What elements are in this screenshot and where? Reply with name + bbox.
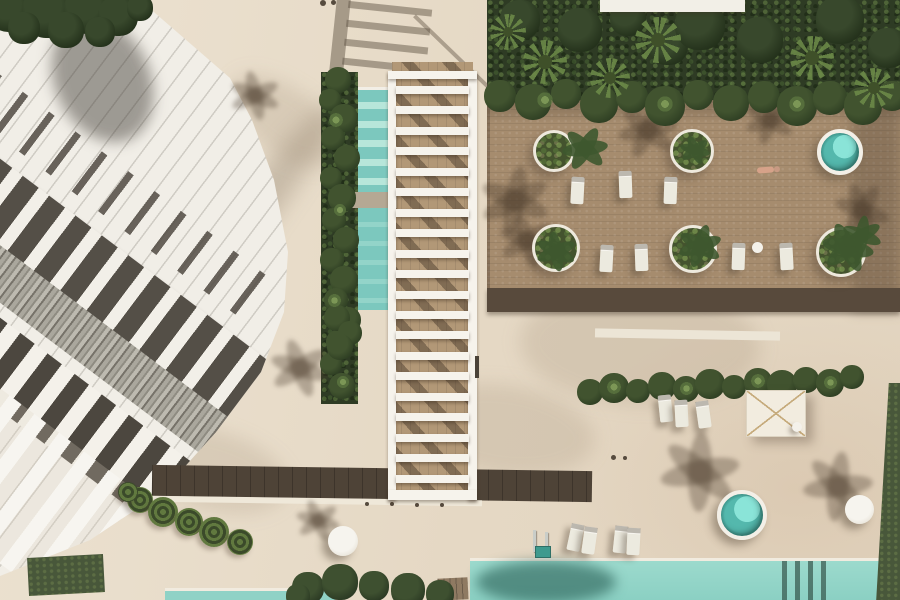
aerial-resort-scene — [0, 0, 900, 600]
leaf-accent — [536, 91, 554, 109]
hedge-blob — [334, 145, 360, 171]
lounger — [618, 170, 632, 197]
leaf-accent — [336, 375, 350, 389]
leaf-accent — [328, 112, 344, 128]
pergola-rung — [396, 475, 469, 483]
bush — [359, 571, 389, 600]
tree-blob — [8, 12, 40, 44]
pergola-rung — [396, 106, 469, 114]
jacuzzi — [717, 490, 767, 540]
daybed — [845, 495, 874, 524]
grass-patch — [27, 554, 105, 596]
bed-plant — [199, 517, 229, 547]
jacuzzi — [817, 129, 863, 175]
lap-pool — [358, 87, 391, 310]
palm-shadow-in-pool — [476, 561, 616, 600]
lounger — [570, 176, 584, 204]
table — [752, 242, 763, 253]
pergola-rung — [396, 291, 469, 299]
pergola-rung — [396, 352, 469, 360]
pergola-rung — [396, 454, 469, 462]
dot — [331, 0, 336, 5]
pool-step-stripe — [782, 561, 787, 600]
pergola-rung — [396, 229, 469, 237]
pool-step-stripe — [795, 561, 800, 600]
crown — [854, 68, 894, 108]
lap-pool-lower-section — [358, 208, 389, 310]
hedge-blob — [748, 81, 780, 113]
leaf-accent — [606, 379, 622, 395]
hedge-blob — [713, 85, 749, 121]
leaf-accent — [823, 375, 838, 390]
tree-blob — [48, 12, 84, 48]
pergola-fixture — [475, 356, 479, 378]
hedge-blob — [683, 80, 713, 110]
pergola-rung — [396, 147, 469, 155]
pergola-rung — [396, 209, 469, 217]
dot — [623, 456, 627, 460]
leaf-accent — [333, 203, 347, 217]
dot — [390, 502, 394, 506]
leaf-accent — [656, 95, 674, 113]
fronds — [679, 141, 711, 158]
crown — [523, 40, 567, 84]
hedge-blob — [813, 81, 847, 115]
deck-left-edge — [487, 95, 490, 312]
pergola-left-rail — [388, 71, 396, 500]
pool-step-stripe — [808, 561, 813, 600]
bush — [426, 580, 454, 600]
pergola-rung — [396, 331, 469, 339]
leaf-accent — [679, 381, 694, 396]
table — [792, 422, 802, 432]
lounger — [674, 399, 688, 427]
pergola-rung — [396, 393, 469, 401]
tree-blob — [868, 28, 900, 68]
daybed — [328, 526, 358, 556]
bed-plant — [227, 529, 253, 555]
lounger — [634, 243, 648, 270]
crown — [590, 58, 630, 98]
crown — [790, 36, 834, 80]
white-pergola — [388, 71, 477, 500]
pergola-rung — [396, 127, 469, 135]
pergola-rung — [396, 188, 469, 196]
person — [756, 166, 773, 173]
hedge-blob — [551, 79, 581, 109]
lounger — [612, 525, 628, 553]
pergola-rung — [396, 168, 469, 176]
tree-blob — [85, 17, 115, 47]
lap-pool-upper-section — [358, 90, 389, 192]
top-wall — [600, 0, 745, 12]
pergola-rung — [396, 270, 469, 278]
hedge-blob — [695, 369, 725, 399]
hedge-blob — [840, 365, 864, 389]
lounger — [731, 242, 745, 269]
pergola-rung — [396, 372, 469, 380]
ladder-step — [535, 546, 551, 558]
pool-step-stripe — [821, 561, 826, 600]
bush — [322, 564, 358, 600]
bed-plant — [118, 482, 138, 502]
deck-edge-step — [487, 288, 900, 312]
dot — [365, 502, 369, 506]
lounger — [657, 394, 673, 422]
leaf-accent — [750, 373, 766, 389]
lounger — [599, 244, 613, 272]
dot — [611, 455, 616, 460]
leaf-accent — [788, 95, 806, 113]
pergola-rung — [396, 86, 469, 94]
pergola-bottom-bar — [388, 490, 477, 500]
pergola-top-bar — [388, 71, 477, 79]
dot — [415, 503, 419, 507]
dot — [440, 503, 444, 507]
pergola-right-rail — [468, 71, 477, 500]
pergola-rung — [396, 311, 469, 319]
tree-blob — [558, 8, 602, 52]
pergola-rung — [396, 413, 469, 421]
lounger — [663, 176, 677, 203]
lounger — [626, 527, 640, 555]
crown — [490, 14, 526, 50]
bush — [286, 584, 310, 600]
leaf-accent — [327, 293, 342, 308]
hedge-blob — [484, 80, 516, 112]
pergola-shadow-rung — [344, 39, 428, 55]
bush — [391, 573, 425, 600]
lounger — [779, 242, 793, 270]
bed-plant — [148, 497, 178, 527]
pool-ladder — [531, 530, 553, 558]
hedge-blob — [722, 375, 746, 399]
hedge-blob — [327, 334, 353, 360]
tree-blob — [737, 17, 783, 63]
pergola-rung — [396, 434, 469, 442]
pergola-shadow-rung — [348, 1, 432, 17]
tree-blob — [127, 0, 153, 21]
tree-blob — [816, 0, 864, 44]
dot — [320, 0, 326, 6]
main-pool — [470, 558, 888, 600]
hedge-blob — [626, 379, 650, 403]
pergola-rung — [396, 250, 469, 258]
crown — [635, 17, 681, 63]
